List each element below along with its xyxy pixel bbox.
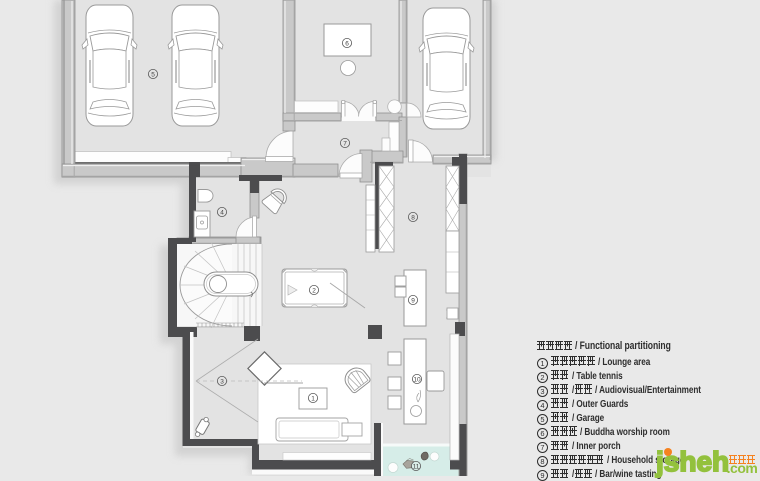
svg-text:10: 10 [413,377,421,384]
svg-text:2: 2 [312,288,316,295]
svg-text:6: 6 [345,41,349,48]
svg-text:9: 9 [411,298,415,305]
svg-text:11: 11 [413,464,420,471]
svg-text:4: 4 [220,210,224,217]
svg-text:5: 5 [151,72,155,79]
svg-text:8: 8 [411,215,415,222]
svg-text:3: 3 [220,379,224,386]
svg-text:7: 7 [343,141,347,148]
svg-text:1: 1 [311,396,315,403]
